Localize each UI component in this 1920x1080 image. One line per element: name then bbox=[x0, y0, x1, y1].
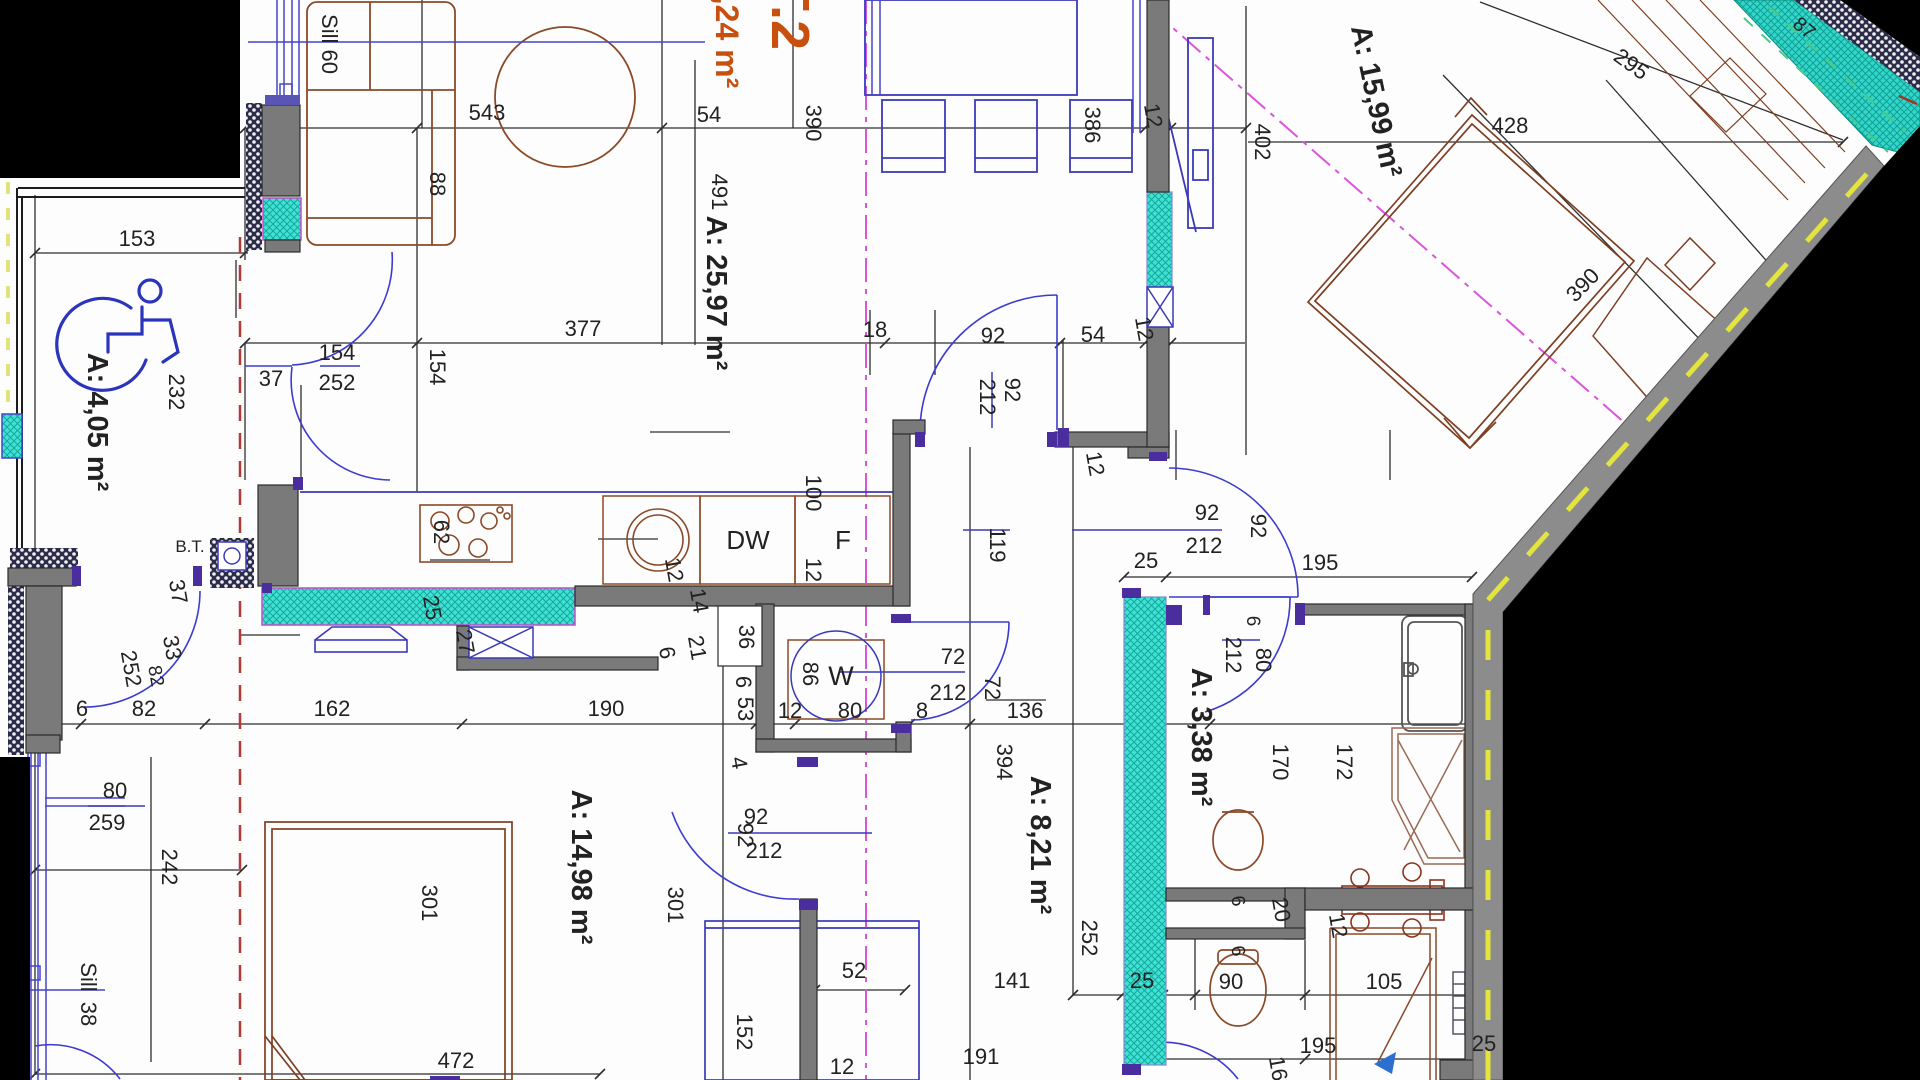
svg-text:25: 25 bbox=[1472, 1031, 1496, 1056]
svg-text:301: 301 bbox=[417, 885, 442, 922]
svg-text:B.T.: B.T. bbox=[175, 537, 204, 556]
svg-text:212: 212 bbox=[930, 680, 967, 705]
svg-text:92: 92 bbox=[1000, 378, 1025, 402]
svg-text:25: 25 bbox=[1130, 968, 1154, 993]
svg-text:52: 52 bbox=[842, 958, 866, 983]
svg-text:92: 92 bbox=[981, 323, 1005, 348]
svg-text:82: 82 bbox=[143, 664, 167, 688]
svg-text:12: 12 bbox=[830, 1054, 854, 1079]
svg-text:54: 54 bbox=[697, 102, 721, 127]
svg-text:A: 14,98 m²: A: 14,98 m² bbox=[565, 790, 597, 945]
svg-text:A: 4,05 m²: A: 4,05 m² bbox=[81, 353, 113, 492]
svg-text:A: 25,97 m²: A: 25,97 m² bbox=[700, 216, 732, 371]
svg-text:25: 25 bbox=[1134, 548, 1158, 573]
svg-text:88: 88 bbox=[425, 172, 450, 196]
svg-text:394: 394 bbox=[992, 744, 1017, 781]
svg-text:72: 72 bbox=[941, 644, 965, 669]
svg-text:86: 86 bbox=[798, 662, 823, 686]
svg-text:12: 12 bbox=[778, 698, 802, 723]
svg-text:119: 119 bbox=[985, 527, 1010, 562]
svg-text:80: 80 bbox=[838, 698, 862, 723]
svg-text:6: 6 bbox=[76, 696, 88, 721]
svg-text:543: 543 bbox=[469, 100, 506, 125]
svg-text:6: 6 bbox=[1242, 616, 1263, 627]
svg-text:12: 12 bbox=[1139, 101, 1168, 129]
svg-text:33: 33 bbox=[158, 633, 187, 661]
svg-text:390: 390 bbox=[801, 105, 826, 142]
svg-text:12: 12 bbox=[1130, 314, 1159, 342]
svg-text:36: 36 bbox=[734, 625, 759, 649]
svg-text:16: 16 bbox=[1264, 1054, 1293, 1080]
svg-text:377: 377 bbox=[565, 316, 602, 341]
svg-text:154: 154 bbox=[425, 349, 450, 386]
svg-text:190: 190 bbox=[588, 696, 625, 721]
svg-text:12: 12 bbox=[660, 555, 689, 583]
svg-text:212: 212 bbox=[1186, 533, 1223, 558]
svg-text:212: 212 bbox=[975, 379, 1000, 416]
svg-text:232: 232 bbox=[164, 374, 189, 411]
svg-text:195: 195 bbox=[1300, 1033, 1337, 1058]
svg-text:154: 154 bbox=[319, 340, 356, 365]
svg-text:90: 90 bbox=[1219, 969, 1243, 994]
svg-text:38: 38 bbox=[76, 1002, 101, 1026]
svg-text:T.2: T.2 bbox=[760, 0, 820, 50]
svg-text:DW: DW bbox=[726, 525, 770, 555]
svg-text:212: 212 bbox=[1221, 637, 1246, 674]
svg-text:12: 12 bbox=[801, 558, 826, 582]
svg-text:14: 14 bbox=[685, 586, 714, 614]
svg-text:62: 62 bbox=[429, 520, 454, 544]
svg-text:82: 82 bbox=[132, 696, 156, 721]
svg-text:54: 54 bbox=[1081, 322, 1105, 347]
svg-text:402: 402 bbox=[1250, 124, 1275, 161]
svg-text:18: 18 bbox=[863, 317, 887, 342]
svg-text:21: 21 bbox=[683, 633, 712, 661]
svg-text:F: F bbox=[835, 525, 851, 555]
svg-text:195: 195 bbox=[1302, 550, 1339, 575]
svg-text:153: 153 bbox=[119, 226, 156, 251]
svg-text:80: 80 bbox=[103, 778, 127, 803]
svg-text:8: 8 bbox=[916, 698, 928, 723]
svg-text:242: 242 bbox=[157, 849, 182, 886]
svg-text:12: 12 bbox=[1081, 449, 1110, 477]
svg-text:,24 m²: ,24 m² bbox=[709, 0, 745, 88]
svg-text:37: 37 bbox=[259, 366, 283, 391]
svg-text:25: 25 bbox=[418, 593, 447, 621]
svg-text:92: 92 bbox=[1246, 514, 1271, 538]
svg-text:252: 252 bbox=[319, 370, 356, 395]
svg-text:105: 105 bbox=[1366, 969, 1403, 994]
svg-text:20: 20 bbox=[1267, 895, 1296, 923]
svg-text:A: 3,38 m²: A: 3,38 m² bbox=[1185, 668, 1217, 807]
svg-text:301: 301 bbox=[663, 887, 688, 924]
svg-text:92: 92 bbox=[733, 823, 758, 847]
svg-text:191: 191 bbox=[963, 1044, 1000, 1069]
svg-text:172: 172 bbox=[1332, 744, 1357, 781]
svg-text:37: 37 bbox=[164, 577, 193, 605]
svg-text:92: 92 bbox=[1195, 500, 1219, 525]
svg-text:252: 252 bbox=[1077, 920, 1102, 957]
svg-text:428: 428 bbox=[1492, 113, 1529, 138]
svg-text:472: 472 bbox=[438, 1048, 475, 1073]
svg-text:141: 141 bbox=[994, 968, 1031, 993]
svg-text:A: 8,21 m²: A: 8,21 m² bbox=[1024, 776, 1056, 915]
svg-text:W: W bbox=[828, 661, 854, 691]
svg-text:162: 162 bbox=[314, 696, 351, 721]
svg-text:72: 72 bbox=[980, 676, 1005, 700]
svg-text:136: 136 bbox=[1007, 698, 1044, 723]
svg-text:Sill 60: Sill 60 bbox=[317, 14, 342, 74]
svg-text:259: 259 bbox=[89, 810, 126, 835]
svg-text:80: 80 bbox=[1251, 648, 1276, 672]
svg-text:170: 170 bbox=[1268, 744, 1293, 781]
svg-text:53: 53 bbox=[733, 697, 758, 721]
svg-text:6: 6 bbox=[731, 676, 756, 688]
svg-text:100: 100 bbox=[801, 475, 826, 512]
svg-text:Sill: Sill bbox=[76, 962, 101, 991]
svg-text:12: 12 bbox=[1324, 911, 1353, 939]
svg-text:27: 27 bbox=[451, 627, 480, 655]
svg-text:386: 386 bbox=[1080, 107, 1105, 144]
svg-text:491: 491 bbox=[707, 174, 732, 211]
svg-text:152: 152 bbox=[732, 1014, 757, 1051]
